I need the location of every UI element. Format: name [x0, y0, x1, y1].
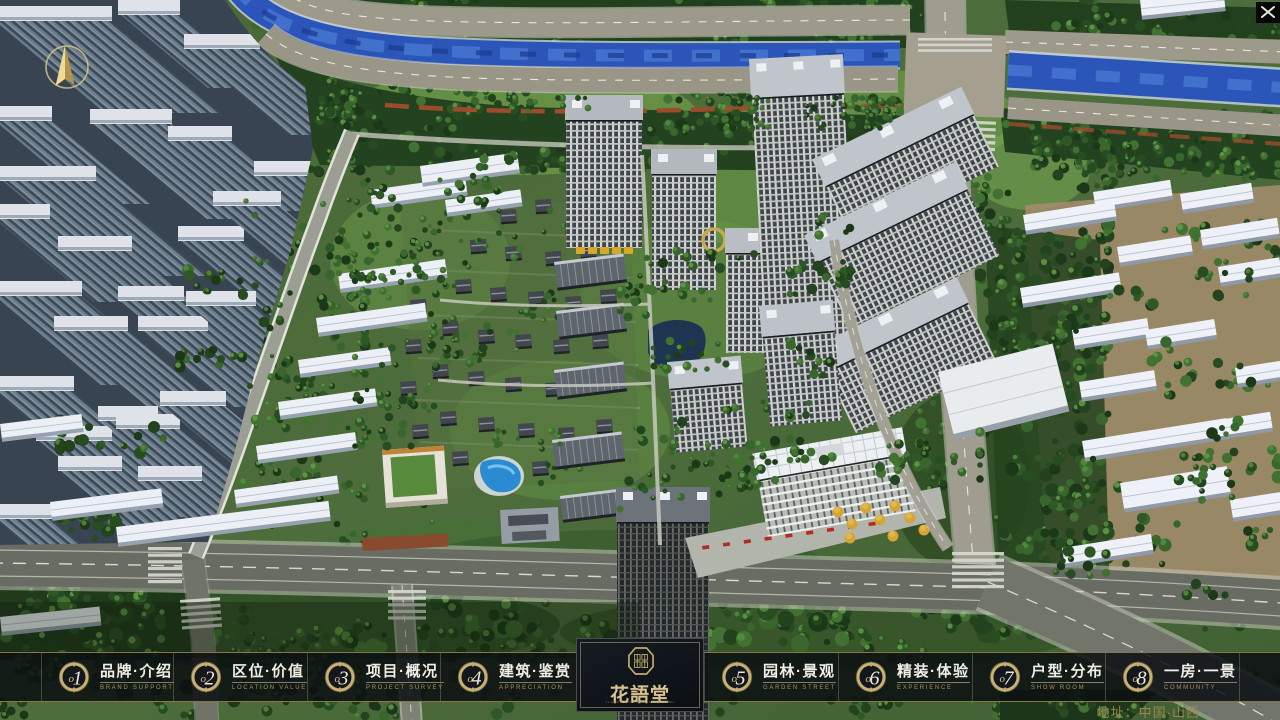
- svg-text:4: 4: [472, 668, 482, 690]
- svg-text:7: 7: [1004, 668, 1015, 690]
- svg-text:5: 5: [736, 668, 746, 690]
- svg-text:1: 1: [73, 668, 83, 690]
- svg-text:2: 2: [205, 668, 215, 690]
- svg-text:6: 6: [870, 668, 880, 690]
- svg-text:3: 3: [338, 668, 349, 690]
- svg-text:8: 8: [1137, 668, 1147, 690]
